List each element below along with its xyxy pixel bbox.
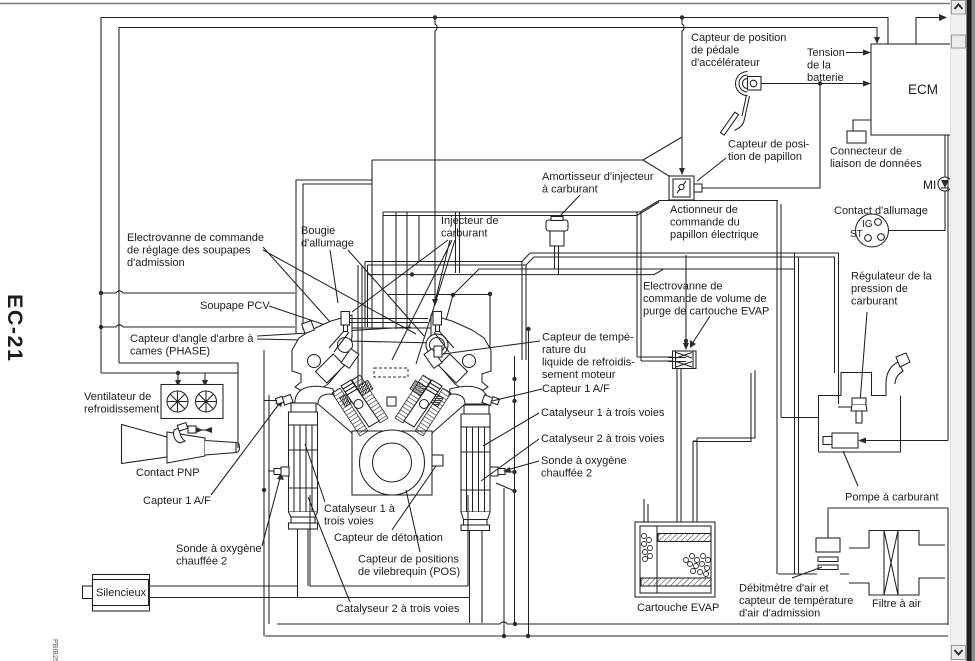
svg-text:Bougie: Bougie	[301, 225, 335, 237]
svg-text:chauffée 2: chauffée 2	[541, 468, 592, 480]
svg-text:Capteur de positions: Capteur de positions	[358, 554, 459, 566]
svg-text:Cartouche EVAP: Cartouche EVAP	[637, 602, 719, 614]
svg-text:liquide de refroidis-: liquide de refroidis-	[542, 357, 635, 369]
svg-text:capteur de température: capteur de température	[739, 595, 853, 607]
svg-text:IG: IG	[862, 219, 873, 230]
svg-text:commande de volume de: commande de volume de	[643, 293, 767, 305]
svg-text:Contact PNP: Contact PNP	[136, 467, 200, 479]
svg-text:Amortisseur d'injecteur: Amortisseur d'injecteur	[542, 171, 654, 183]
svg-text:carburant: carburant	[441, 228, 487, 240]
svg-text:Actionneur de: Actionneur de	[670, 204, 738, 216]
svg-text:sement moteur: sement moteur	[542, 369, 616, 381]
svg-text:Electrovanne de: Electrovanne de	[643, 281, 723, 293]
svg-text:carburant: carburant	[851, 296, 897, 308]
svg-text:Tension: Tension	[807, 47, 845, 59]
svg-text:Sonde à oxygène: Sonde à oxygène	[176, 543, 262, 555]
svg-text:de la: de la	[807, 60, 832, 72]
svg-text:de pédale: de pédale	[691, 45, 739, 57]
svg-text:refroidissement: refroidissement	[84, 404, 159, 416]
svg-text:Soupape PCV: Soupape PCV	[200, 300, 270, 312]
svg-text:Capteur de position: Capteur de position	[691, 32, 786, 44]
svg-text:d'allumage: d'allumage	[301, 238, 354, 250]
svg-text:pression de: pression de	[851, 283, 908, 295]
svg-text:d'air d'admission: d'air d'admission	[739, 608, 820, 620]
svg-text:Capteur de tempé-: Capteur de tempé-	[542, 332, 634, 344]
svg-text:Capteur de détonation: Capteur de détonation	[334, 532, 443, 544]
svg-text:trois voies: trois voies	[324, 516, 374, 528]
svg-text:rature du: rature du	[542, 344, 586, 356]
svg-text:Silencieux: Silencieux	[96, 587, 147, 599]
svg-text:PBIB2534E: PBIB2534E	[51, 639, 58, 661]
svg-text:Electrovanne de commande: Electrovanne de commande	[127, 232, 264, 244]
svg-text:ECM: ECM	[908, 82, 938, 97]
svg-text:Catalyseur 2 à trois voies: Catalyseur 2 à trois voies	[541, 433, 665, 445]
svg-text:Filtre à air: Filtre à air	[872, 598, 921, 610]
svg-text:cames (PHASE): cames (PHASE)	[130, 346, 210, 358]
svg-text:ST: ST	[850, 229, 863, 240]
svg-text:Contact d'allumage: Contact d'allumage	[834, 205, 928, 217]
svg-text:Sonde à oxygène: Sonde à oxygène	[541, 455, 627, 467]
svg-text:Capteur 1 A/F: Capteur 1 A/F	[542, 383, 610, 395]
svg-text:Capteur d'angle d'arbre à: Capteur d'angle d'arbre à	[130, 333, 254, 345]
svg-text:Catalyseur 2 à trois voies: Catalyseur 2 à trois voies	[336, 603, 460, 615]
svg-text:de réglage des soupapes: de réglage des soupapes	[127, 245, 251, 257]
svg-text:Ventilateur de: Ventilateur de	[84, 391, 151, 403]
svg-text:chauffée 2: chauffée 2	[176, 556, 227, 568]
svg-text:MI: MI	[923, 178, 936, 192]
svg-text:à carburant: à carburant	[542, 184, 598, 196]
svg-text:Catalyseur 1 à: Catalyseur 1 à	[324, 503, 396, 515]
svg-text:d'admission: d'admission	[127, 257, 185, 269]
svg-text:EC-21: EC-21	[3, 294, 27, 362]
svg-text:de vilebrequin (POS): de vilebrequin (POS)	[358, 566, 460, 578]
svg-text:batterie: batterie	[807, 72, 844, 84]
svg-text:liaison de données: liaison de données	[830, 158, 922, 170]
svg-text:d'accélérateur: d'accélérateur	[691, 57, 760, 69]
svg-text:papillon électrique: papillon électrique	[670, 229, 759, 241]
svg-text:Catalyseur 1 à trois voies: Catalyseur 1 à trois voies	[541, 407, 665, 419]
svg-text:Connecteur de: Connecteur de	[830, 146, 902, 158]
svg-text:Pompe à carburant: Pompe à carburant	[845, 492, 939, 504]
svg-text:Capteur de posi-: Capteur de posi-	[728, 139, 810, 151]
svg-text:tion de papillon: tion de papillon	[728, 151, 802, 163]
svg-text:Injecteur de: Injecteur de	[441, 215, 498, 227]
svg-text:purge de cartouche EVAP: purge de cartouche EVAP	[643, 306, 769, 318]
svg-text:Débitmètre d'air et: Débitmètre d'air et	[739, 583, 829, 595]
svg-text:commande du: commande du	[670, 217, 740, 229]
svg-text:Régulateur de la: Régulateur de la	[851, 271, 933, 283]
svg-text:Capteur 1 A/F: Capteur 1 A/F	[143, 495, 211, 507]
